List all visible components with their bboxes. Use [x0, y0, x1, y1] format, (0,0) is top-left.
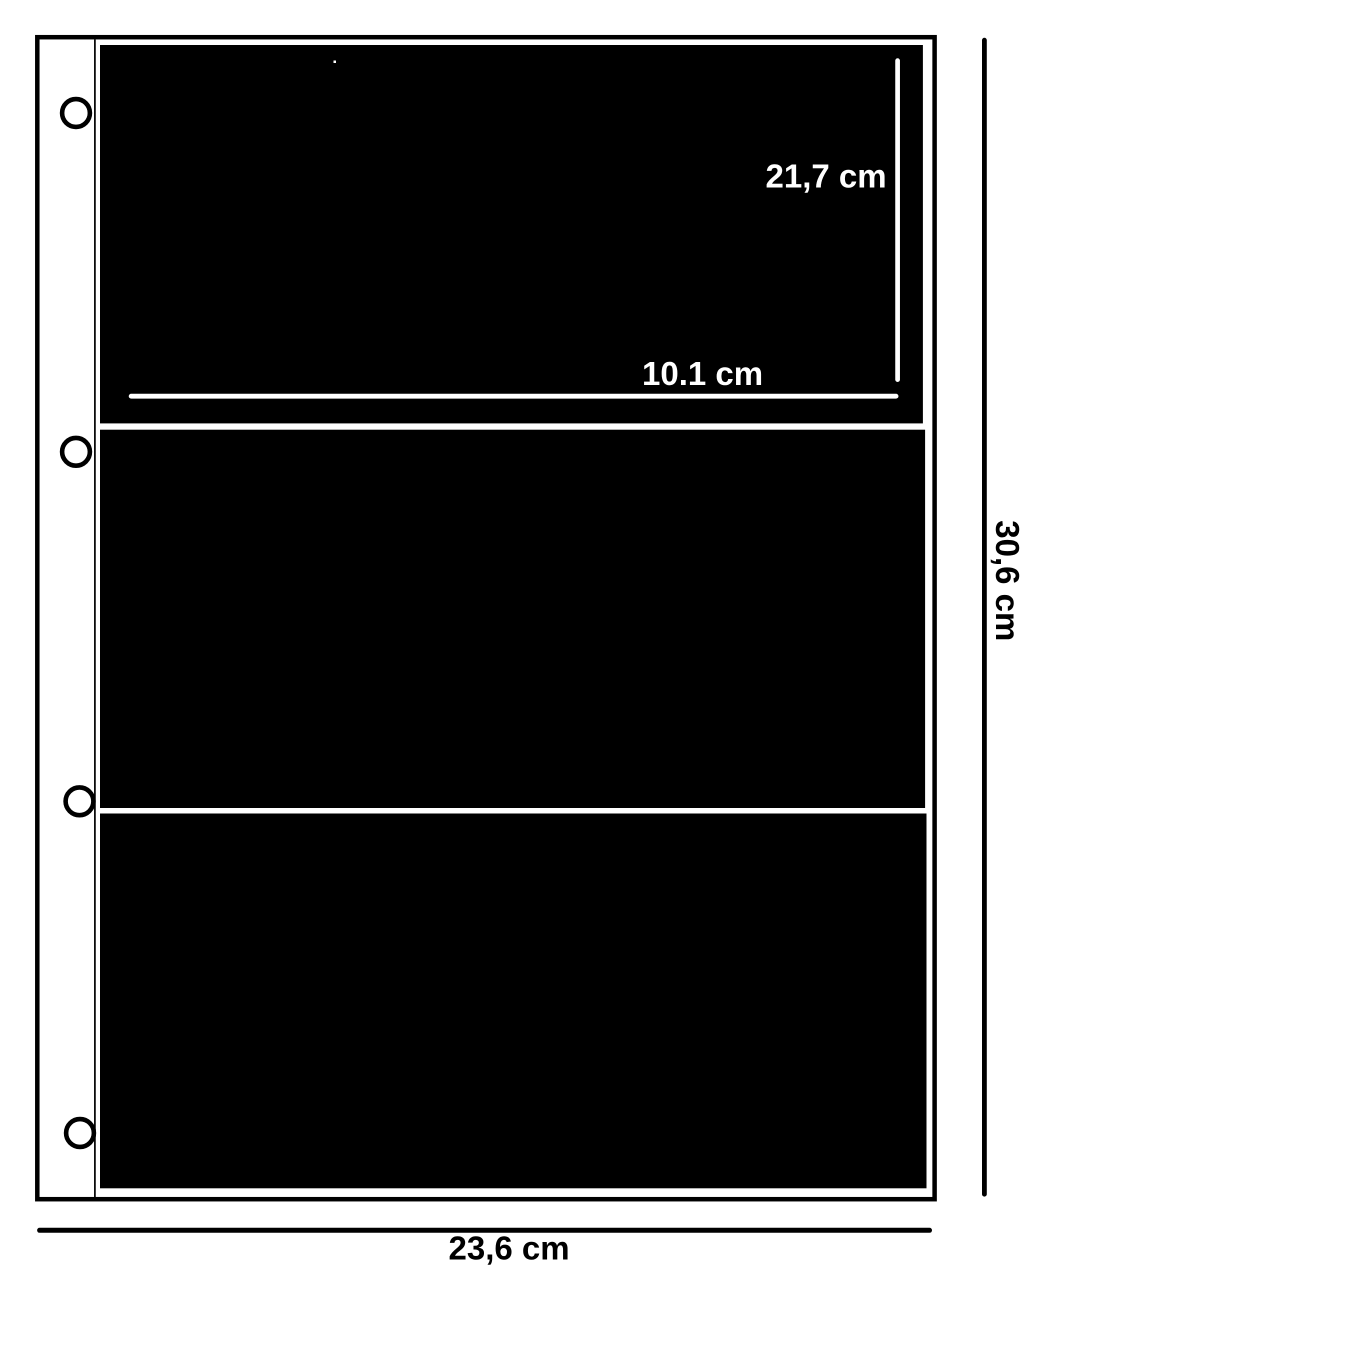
svg-text:21,7 cm: 21,7 cm — [766, 157, 887, 194]
svg-text:30,6 cm: 30,6 cm — [989, 520, 1026, 641]
svg-text:23,6 cm: 23,6 cm — [449, 1229, 570, 1266]
svg-text:10.1 cm: 10.1 cm — [642, 355, 763, 392]
